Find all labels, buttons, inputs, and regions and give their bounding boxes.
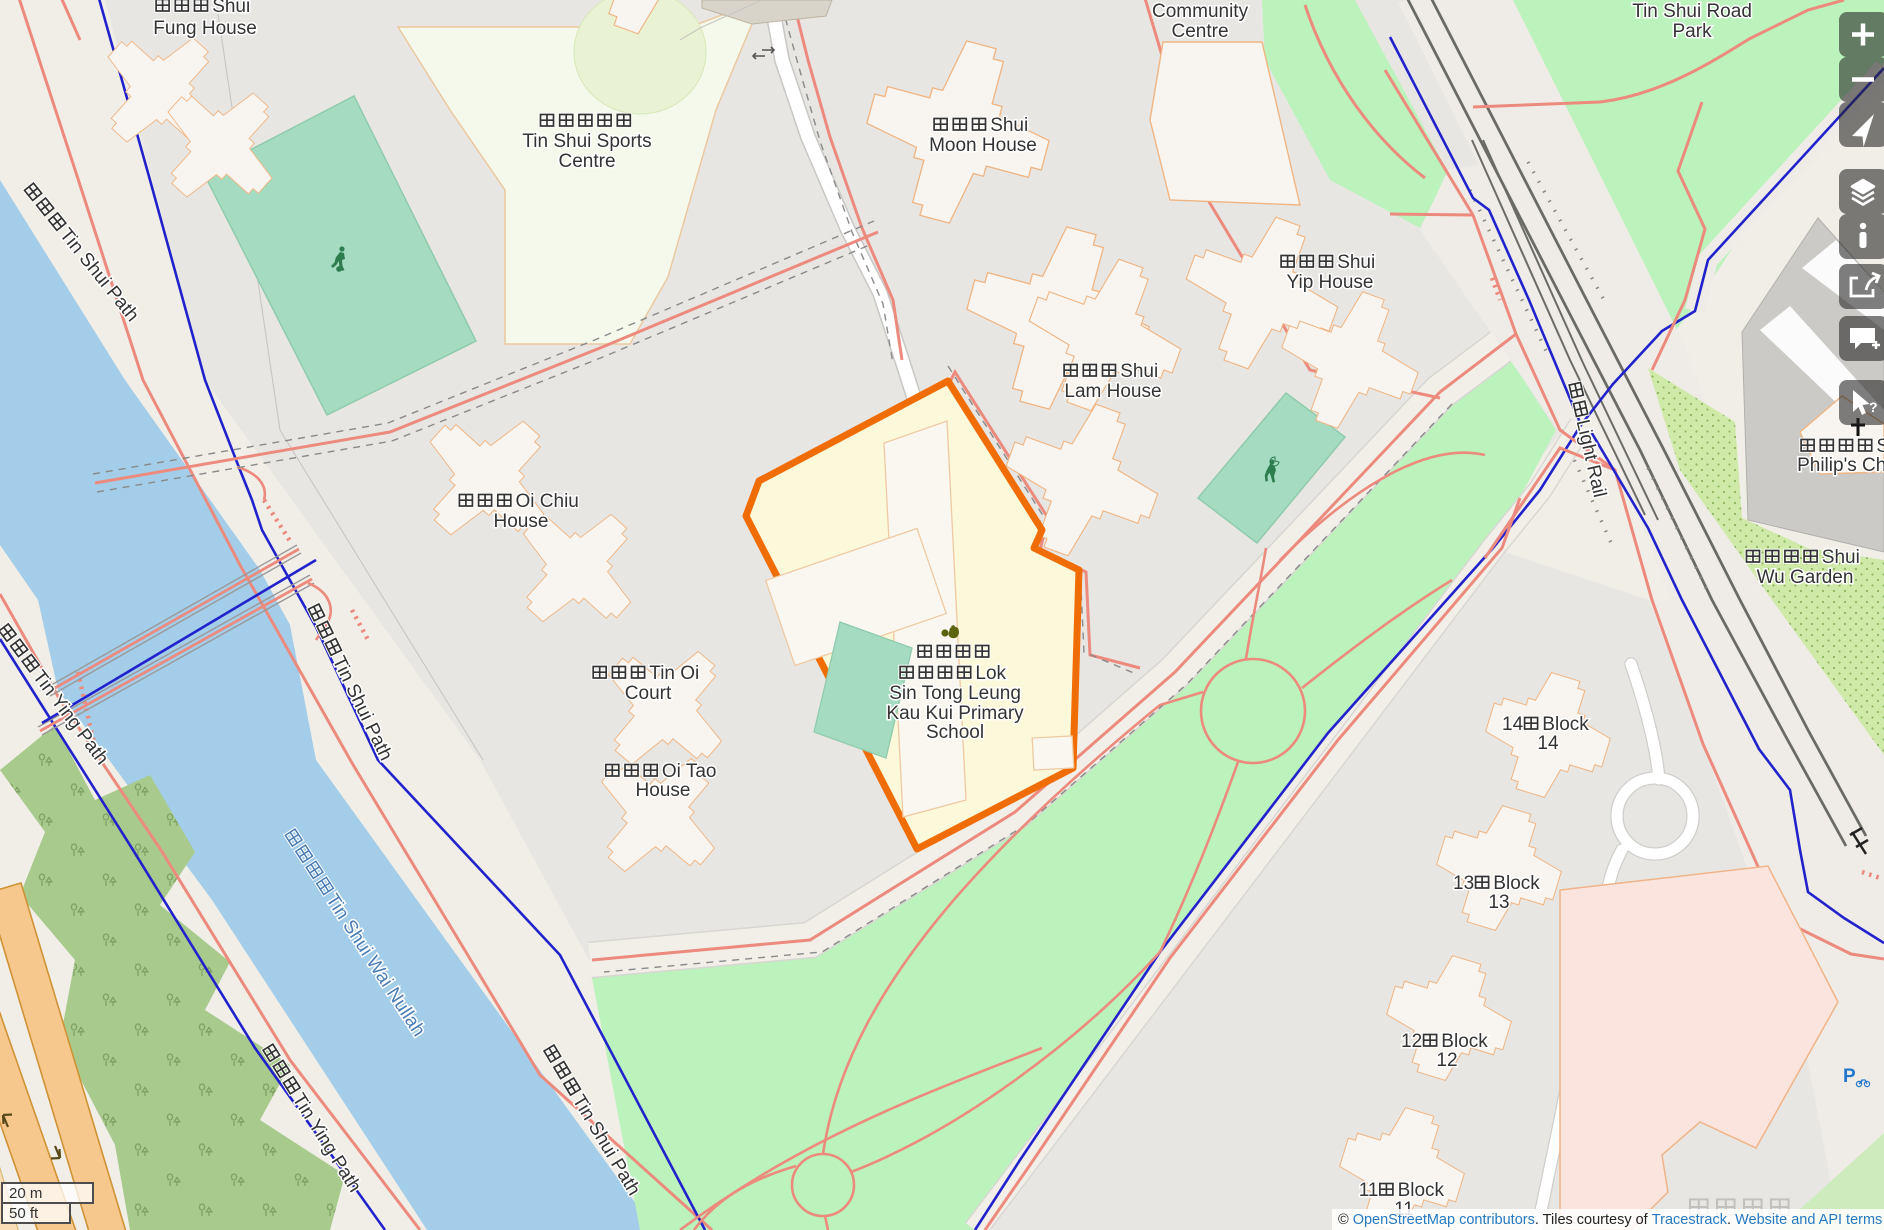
- svg-text:14: 14: [1537, 733, 1559, 754]
- svg-text:Shui: Shui: [1822, 547, 1860, 568]
- svg-text:School: School: [926, 722, 984, 743]
- svg-text:Fung House: Fung House: [153, 18, 257, 39]
- svg-text:Moon House: Moon House: [929, 135, 1037, 156]
- svg-text:Yip House: Yip House: [1287, 272, 1374, 293]
- svg-text:13: 13: [1453, 873, 1474, 894]
- svg-text:Block: Block: [1441, 1031, 1488, 1052]
- svg-text:?: ?: [1869, 399, 1878, 415]
- svg-text:S: S: [1876, 436, 1884, 457]
- svg-text:11: 11: [1359, 1180, 1379, 1201]
- svg-text:Shui: Shui: [1120, 361, 1158, 382]
- svg-text:Website and API terms: Website and API terms: [1735, 1212, 1882, 1228]
- svg-text:14: 14: [1502, 714, 1524, 735]
- svg-text:Oi Tao: Oi Tao: [662, 761, 717, 782]
- svg-text:Oi Chiu: Oi Chiu: [516, 491, 579, 512]
- svg-text:13: 13: [1488, 892, 1509, 913]
- svg-text:Park: Park: [1673, 21, 1713, 42]
- svg-text:Block: Block: [1493, 873, 1540, 894]
- svg-text:House: House: [636, 780, 691, 801]
- svg-text:Tin Shui Sports: Tin Shui Sports: [522, 131, 651, 152]
- svg-text:12: 12: [1436, 1050, 1457, 1071]
- svg-text:Kau Kui Primary: Kau Kui Primary: [886, 703, 1024, 724]
- svg-text:Lam House: Lam House: [1064, 381, 1161, 402]
- svg-text:Shui: Shui: [990, 115, 1028, 136]
- svg-text:OpenStreetMap contributors: OpenStreetMap contributors: [1353, 1212, 1535, 1228]
- svg-text:Tin Shui Road: Tin Shui Road: [1632, 1, 1752, 22]
- svg-text:Shui: Shui: [212, 0, 250, 17]
- svg-text:Tin Oi: Tin Oi: [649, 663, 699, 684]
- svg-text:House: House: [494, 511, 549, 532]
- svg-text:Centre: Centre: [1172, 21, 1229, 42]
- svg-text:Wu Garden: Wu Garden: [1757, 567, 1854, 588]
- svg-text:Centre: Centre: [559, 151, 616, 172]
- svg-text:12: 12: [1401, 1031, 1422, 1052]
- svg-text:Tracestrack: Tracestrack: [1652, 1212, 1728, 1228]
- svg-text:20 m: 20 m: [9, 1185, 42, 1202]
- svg-text:Block: Block: [1542, 714, 1589, 735]
- svg-text:Shui: Shui: [1337, 252, 1375, 273]
- svg-text:Philip's Chu: Philip's Chu: [1797, 455, 1884, 476]
- svg-text:Block: Block: [1398, 1180, 1445, 1201]
- svg-text:. Tiles courtesy of: . Tiles courtesy of: [1535, 1212, 1649, 1228]
- svg-text:Court: Court: [625, 683, 672, 704]
- svg-text:©: ©: [1338, 1212, 1349, 1228]
- svg-text:P: P: [1843, 1066, 1856, 1087]
- svg-text:Community: Community: [1152, 1, 1249, 22]
- svg-text:Sin Tong Leung: Sin Tong Leung: [889, 683, 1021, 704]
- svg-text:50 ft: 50 ft: [9, 1205, 39, 1222]
- svg-text:.: .: [1727, 1212, 1731, 1228]
- svg-text:Lok: Lok: [975, 663, 1006, 684]
